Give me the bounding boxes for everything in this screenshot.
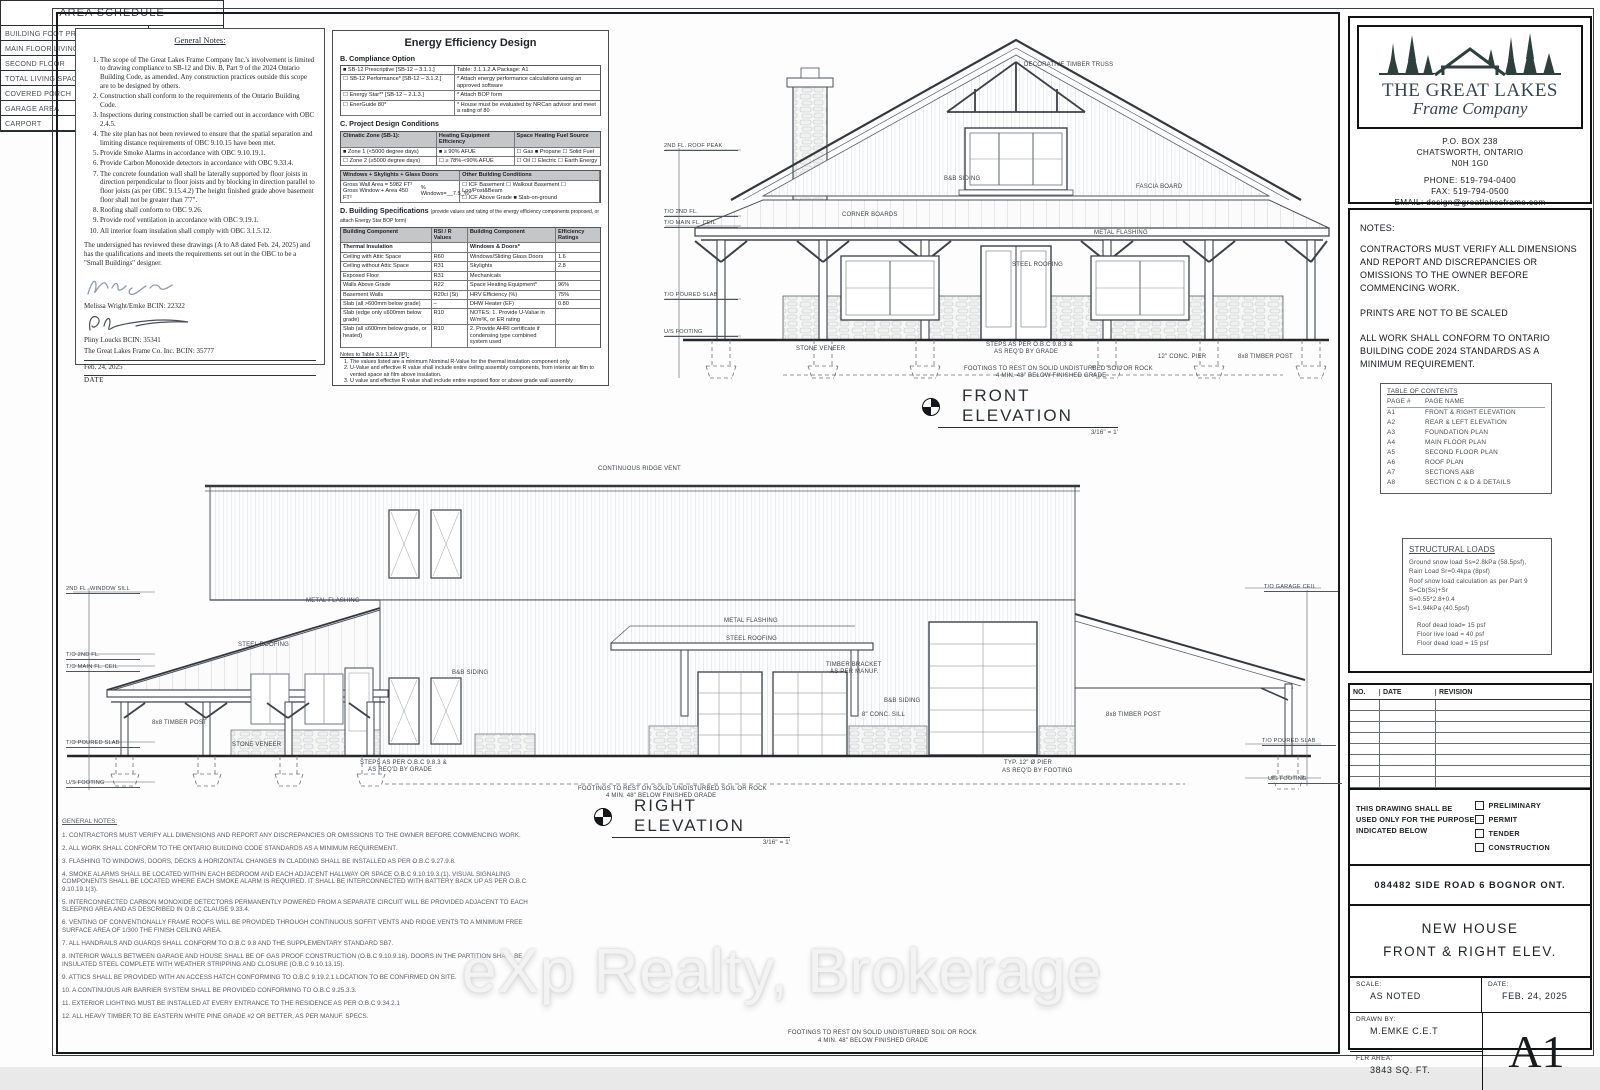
date-label: DATE: [84, 375, 316, 385]
spec-cell: R10: [432, 309, 468, 325]
drawing-annotation: AS REQ'D BY GRADE: [994, 349, 1058, 355]
toc-page: A3: [1387, 428, 1425, 438]
drawing-annotation: 8x8 TIMBER POST: [152, 720, 207, 726]
spec-cell: 96%: [556, 281, 600, 290]
structural-load-line: S=1.94kPa (40.5psf): [1409, 604, 1545, 613]
drawing-annotation: METAL FLASHING: [1094, 230, 1148, 236]
toc-page: A2: [1387, 418, 1425, 428]
energy-footnotes: Notes to Table 3.1.1.2.A (IP): The value…: [340, 352, 601, 386]
drawing-annotation: 8x8 TIMBER POST: [1238, 354, 1293, 360]
toc-name: FOUNDATION PLAN: [1425, 429, 1488, 436]
toc-entry: A3FOUNDATION PLAN: [1387, 428, 1545, 438]
toc-name: REAR & LEFT ELEVATION: [1425, 419, 1507, 426]
toc-entry: A1FRONT & RIGHT ELEVATION: [1387, 408, 1545, 418]
designer1-name: Melissa Wright/Emke BCIN: 22322: [84, 302, 316, 311]
drawing-annotation: T/O POURED SLAB: [664, 292, 738, 300]
toc-name: FRONT & RIGHT ELEVATION: [1425, 409, 1516, 416]
front-elevation-title: FRONT ELEVATION 3/16" = 1': [938, 386, 1118, 436]
structural-load-line: Floor live load = 40 psf: [1417, 630, 1545, 639]
spec-cell: Mechanicals: [468, 272, 556, 281]
drawing-annotation: U/S FOOTING: [1268, 776, 1342, 784]
drawing-annotation: 4 MIN. 48" BELOW FINISHED GRADE: [818, 1038, 928, 1044]
scale-cell: SCALE: AS NOTED: [1350, 978, 1482, 1012]
drawing-annotation: TIMBER BRACKET: [826, 662, 881, 668]
drawing-annotation: 2ND FL. WINDOW SILL: [66, 586, 140, 594]
drawing-annotation: 8x8 TIMBER POST: [1106, 712, 1161, 718]
revision-row: [1350, 733, 1590, 744]
drawing-annotation: CONTINUOUS RIDGE VENT: [598, 466, 681, 472]
general-note-item: Provide Carbon Monoxide detectors in acc…: [100, 159, 316, 168]
general-note-item: All interior foam insulation shall compl…: [100, 227, 316, 236]
compliance-cell: ☐ Energy Star** [SB-12 – 2.1.3.]: [341, 91, 455, 100]
sheet-number: A1: [1483, 1013, 1590, 1090]
drawing-annotation: STONE VENEER: [232, 742, 281, 748]
drawing-annotation: 4 MIN. 48" BELOW FINISHED GRADE: [606, 793, 716, 799]
spec-cell: Slab (all ≤600mm below grade, or heated): [341, 325, 432, 347]
drawing-annotation: METAL FLASHING: [306, 598, 360, 604]
dimension-lines: [665, 148, 741, 378]
compliance-cell: * Attach energy performance calculations…: [455, 75, 600, 91]
bottom-note-item: 6. VENTING OF CONVENTIONALLY FRAME ROOFS…: [62, 919, 536, 934]
spec-cell: 0.80: [556, 300, 600, 309]
compliance-cell: Table: 3.1.1.2.A Package: A1: [455, 66, 600, 75]
trees-and-frame-icon: [1365, 31, 1575, 77]
spec-cell: 2.8: [556, 262, 600, 271]
general-note-item: The site plan has not been reviewed to e…: [100, 130, 316, 148]
spec-cell: DHW Heater (EF): [468, 300, 556, 309]
floor-area-cell: FLR AREA: 3843 SQ. FT.: [1350, 1052, 1482, 1090]
spec-cell: [556, 309, 600, 325]
general-note-item: Provide Smoke Alarms in accordance with …: [100, 149, 316, 158]
footings-below-grade: [111, 756, 1304, 789]
drawing-annotation: FASCIA BOARD: [1136, 184, 1182, 190]
drawing-annotation: FOOTINGS TO REST ON SOLID UNDISTURBED SO…: [964, 366, 1153, 372]
bottom-note-item: 9. ATTICS SHALL BE PROVIDED WITH AN ACCE…: [62, 974, 536, 982]
company-logo-box: THE GREAT LAKES Frame Company P.O. BOX 2…: [1348, 16, 1592, 204]
revision-row: [1350, 722, 1590, 733]
drawing-annotation: AS REQ'D BY FOOTING: [1002, 768, 1073, 774]
drawing-sheet: General Notes: The scope of The Great La…: [0, 0, 1600, 1067]
spec-cell: Slab (all >600mm below grade): [341, 300, 432, 309]
drawing-annotation: T/O POURED SLAB: [66, 740, 140, 748]
bottom-note-item: 11. EXTERIOR LIGHTING MUST BE INSTALLED …: [62, 1000, 536, 1008]
right-elevation-title: RIGHT ELEVATION 3/16" = 1': [612, 796, 790, 846]
bottom-note-item: 1. CONTRACTORS MUST VERIFY ALL DIMENSION…: [62, 832, 536, 840]
spec-cell: Exposed Floor: [341, 272, 432, 281]
bottom-note-item: 7. ALL HANDRAILS AND GUARDS SHALL CONFOR…: [62, 940, 536, 948]
designer-declaration: The undersigned has reviewed these drawi…: [84, 241, 316, 267]
general-notes-box: General Notes: The scope of The Great La…: [75, 28, 325, 365]
spec-cell: [556, 325, 600, 347]
revision-row: [1350, 777, 1590, 788]
drawing-annotation: B&B SIDING: [452, 670, 488, 676]
drawing-annotation: FOOTINGS TO REST ON SOLID UNDISTURBED SO…: [788, 1030, 977, 1036]
purpose-section: THIS DRAWING SHALL BE USED ONLY FOR THE …: [1350, 788, 1590, 864]
drawing-annotation: STEPS AS PER O.B.C 9.8.3 &: [986, 342, 1073, 348]
spec-cell: R10: [432, 325, 468, 347]
bottom-note-item: 10. A CONTINUOUS AIR BARRIER SYSTEM SHAL…: [62, 987, 536, 995]
bottom-note-item: 5. INTERCONNECTED CARBON MONOXIDE DETECT…: [62, 899, 536, 914]
toc-name: ROOF PLAN: [1425, 459, 1464, 466]
checkbox-icon[interactable]: [1475, 815, 1484, 824]
spec-cell: NOTES: 1. Provide U-Value in W/m²K, or E…: [468, 309, 556, 325]
sheet-title: NEW HOUSE FRONT & RIGHT ELEV.: [1350, 904, 1590, 976]
spec-cell: HRV Efficiency (%): [468, 291, 556, 300]
revision-row: [1350, 744, 1590, 755]
drawing-annotation: STEEL ROOFING: [1012, 262, 1063, 268]
purpose-option: CONSTRUCTION: [1475, 840, 1584, 854]
revision-table: NO. DATE REVISION: [1350, 685, 1590, 788]
structural-load-line: Roof snow load calculation as per Part 9: [1409, 577, 1545, 586]
drawing-annotation: 8" CONC. SILL: [862, 712, 905, 718]
date-cell: DATE: FEB. 24, 2025: [1482, 978, 1590, 1012]
company-bcin: The Great Lakes Frame Co. Inc. BCIN: 357…: [84, 347, 316, 356]
titleblock-note: CONTRACTORS MUST VERIFY ALL DIMENSIONS A…: [1360, 243, 1580, 295]
drawing-annotation: TYP. 12" Ø PIER: [1004, 760, 1052, 766]
purpose-option-label: PERMIT: [1489, 815, 1518, 824]
drawing-annotation: STEPS AS PER O.B.C 9.8.3 &: [360, 760, 447, 766]
drawing-annotation: 12" CONC. PIER: [1158, 354, 1206, 360]
bottom-note-item: 3. FLASHING TO WINDOWS, DOORS, DECKS & H…: [62, 858, 536, 866]
toc-name: SECTION C & D & DETAILS: [1425, 479, 1511, 486]
compliance-cell: * Attach BOP form: [455, 91, 600, 100]
drawing-annotation: B&B SIDING: [944, 176, 980, 182]
purpose-option-label: CONSTRUCTION: [1489, 843, 1551, 852]
checkbox-icon[interactable]: [1475, 843, 1484, 852]
spec-cell: Walls Above Grade: [341, 281, 432, 290]
right-elevation-marker-icon: [594, 808, 612, 826]
windows-conditions-table: Windows + Skylights + Glass Doors Other …: [340, 170, 601, 203]
bottom-note-item: 2. ALL WORK SHALL CONFORM TO THE ONTARIO…: [62, 845, 536, 853]
energy-title: Energy Efficiency Design: [340, 37, 601, 50]
porch-roof: [695, 200, 1329, 240]
spec-cell: –: [432, 300, 468, 309]
bottom-note-item: 12. ALL HEAVY TIMBER TO BE EASTERN WHITE…: [62, 1013, 536, 1021]
structural-loads-box: STRUCTURAL LOADS Ground snow load Ss=2.8…: [1402, 538, 1552, 655]
structural-load-line: Roof dead load= 15 psf: [1417, 621, 1545, 630]
drawing-annotation: T/O GARAGE CEIL: [1264, 584, 1338, 592]
spec-cell: R20ci (Si): [432, 291, 468, 300]
spec-cell: R22: [432, 281, 468, 290]
bottom-general-notes: GENERAL NOTES: 1. CONTRACTORS MUST VERIF…: [62, 818, 536, 1026]
spec-cell: Space Heating Equipment*: [468, 281, 556, 290]
energy-footnote: The values listed are a minimum Nominal …: [350, 359, 601, 365]
drawing-annotation: STEEL ROOFING: [238, 642, 289, 648]
toc-title: TABLE OF CONTENTS: [1387, 387, 1545, 397]
titleblock-note: ALL WORK SHALL CONFORM TO ONTARIO BUILDI…: [1360, 332, 1580, 371]
front-elevation-drawing: [643, 28, 1343, 390]
drawing-annotation: METAL FLASHING: [724, 618, 778, 624]
signing-date: Feb. 24, 2025: [84, 360, 316, 372]
drawing-annotation: AS PER MANUF.: [830, 669, 879, 675]
toc-name: SECOND FLOOR PLAN: [1425, 449, 1498, 456]
general-note-item: The concrete foundation wall shall be la…: [100, 170, 316, 205]
energy-section-b: B. Compliance Option: [340, 55, 601, 63]
table-of-contents: TABLE OF CONTENTS PAGE #PAGE NAME A1FRON…: [1380, 383, 1552, 493]
gable-window: [959, 128, 1073, 195]
energy-footnote: U value and effective R value shall incl…: [350, 378, 601, 386]
company-logo: THE GREAT LAKES Frame Company: [1357, 25, 1583, 129]
toc-page: A5: [1387, 448, 1425, 458]
compliance-table: ■ SB-12 Prescriptive [SB-12 – 3.1.1.]Tab…: [340, 65, 601, 117]
checkbox-icon[interactable]: [1475, 829, 1484, 838]
toc-name: MAIN FLOOR PLAN: [1425, 439, 1486, 446]
drawing-annotation: 4 MIN. 48" BELOW FINISHED GRADE: [996, 373, 1106, 379]
design-conditions-table: Climatic Zone (SB-1): Heating Equipment …: [340, 131, 601, 167]
spec-cell: 1.6: [556, 253, 600, 262]
second-storey-wall: [205, 486, 1080, 600]
revision-title-block: NO. DATE REVISION: [1348, 683, 1592, 1050]
general-note-item: Provide roof ventilation in accordance w…: [100, 216, 316, 225]
purpose-option: PERMIT: [1475, 812, 1584, 826]
revision-row: [1350, 700, 1590, 711]
energy-section-c: C. Project Design Conditions: [340, 120, 601, 128]
revision-row: [1350, 766, 1590, 777]
structural-load-line: Floor dead load = 15 psf: [1417, 639, 1545, 648]
spec-cell: Ceiling without Attic Space: [341, 262, 432, 271]
toc-page: A6: [1387, 458, 1425, 468]
drawing-annotation: U/S FOOTING: [664, 329, 738, 337]
revision-row: [1350, 755, 1590, 766]
titleblock-note: PRINTS ARE NOT TO BE SCALED: [1360, 307, 1580, 320]
signature-pliny: [84, 310, 204, 334]
structural-load-line: Ground snow load Ss=2.8kPa (58.5psf),: [1409, 558, 1545, 567]
compliance-cell: * House must be evaluated by NRCan advis…: [455, 101, 600, 117]
drawing-annotation: B&B SIDING: [884, 698, 920, 704]
purpose-option-label: PRELIMINARY: [1489, 801, 1542, 810]
energy-efficiency-box: Energy Efficiency Design B. Compliance O…: [332, 30, 609, 386]
toc-entry: A8SECTION C & D & DETAILS: [1387, 478, 1545, 488]
compliance-cell: ☐ SB-12 Performance* [SB-12 – 3.1.2.]: [341, 75, 455, 91]
titleblock-notes-box: NOTES: CONTRACTORS MUST VERIFY ALL DIMEN…: [1348, 208, 1592, 673]
spec-cell: R60: [432, 253, 468, 262]
general-note-item: Roofing shall conform to OBC 9.26.: [100, 206, 316, 215]
compliance-cell: ☐ EnerGuide 80*: [341, 101, 455, 117]
compliance-cell: ■ SB-12 Prescriptive [SB-12 – 3.1.1.]: [341, 66, 455, 75]
bottom-notes-title: GENERAL NOTES:: [62, 818, 536, 826]
drawing-annotation: STEEL ROOFING: [726, 636, 777, 642]
general-note-item: The scope of The Great Lakes Frame Compa…: [100, 56, 316, 91]
drawing-annotation: FOOTINGS TO REST ON SOLID UNDISTURBED SO…: [578, 786, 767, 792]
drawing-annotation: CORNER BOARDS: [842, 212, 898, 218]
revision-row: [1350, 711, 1590, 722]
toc-page: A8: [1387, 478, 1425, 488]
toc-page: A1: [1387, 408, 1425, 418]
drawing-annotation: T/O 2ND FL.: [664, 209, 738, 217]
structural-load-line: Rain Load Sr=0.4kpa (8psf): [1409, 567, 1545, 576]
toc-entry: A7SECTIONS A&B: [1387, 468, 1545, 478]
spec-cell: R31: [432, 272, 468, 281]
purpose-option-label: TENDER: [1489, 829, 1520, 838]
bottom-note-item: 8. INTERIOR WALLS BETWEEN GARAGE AND HOU…: [62, 953, 536, 968]
checkbox-icon[interactable]: [1475, 801, 1484, 810]
structural-loads-title: STRUCTURAL LOADS: [1409, 544, 1545, 556]
drawing-annotation: T/O 2ND FL.: [66, 652, 140, 660]
spec-cell: Slab (edge only ≤600mm below grade): [341, 309, 432, 325]
signature-melissa: [84, 274, 194, 300]
drawing-annotation: T/O MAIN FL. CEIL: [664, 220, 738, 228]
project-address: 084482 SIDE ROAD 6 BOGNOR ONT.: [1350, 864, 1590, 904]
spec-cell: R31: [432, 262, 468, 271]
drawing-annotation: 2ND FL. ROOF PEAK: [664, 143, 738, 151]
drawn-by-cell: DRAWN BY: M.EMKE C.E.T: [1350, 1013, 1482, 1052]
spec-cell: Skylights: [468, 262, 556, 271]
toc-entry: A4MAIN FLOOR PLAN: [1387, 438, 1545, 448]
right-elevation-scale: 3/16" = 1': [612, 839, 790, 846]
purpose-option: PRELIMINARY: [1475, 798, 1584, 812]
general-notes-title: General Notes:: [84, 35, 316, 46]
carport: [1075, 614, 1305, 756]
general-note-item: Construction shall conform to the requir…: [100, 92, 316, 110]
drawing-annotation: T/O MAIN FL. CEIL: [66, 664, 140, 672]
spec-cell: Basement Walls: [341, 291, 432, 300]
structural-load-line: S=Cb(Ss)+Sr: [1409, 586, 1545, 595]
front-elevation-scale: 3/16" = 1': [938, 429, 1118, 436]
spec-cell: Ceiling with Attic Space: [341, 253, 432, 262]
drawing-annotation: DECORATIVE TIMBER TRUSS: [1024, 62, 1113, 68]
toc-entry: A5SECOND FLOOR PLAN: [1387, 448, 1545, 458]
notes-heading: NOTES:: [1360, 222, 1580, 235]
building-spec-header: Building Component RSI / R Values Buildi…: [340, 227, 601, 253]
spec-cell: Windows/Sliding Glass Doors: [468, 253, 556, 262]
drawing-annotation: AS REQ'D BY GRADE: [368, 767, 432, 773]
spec-cell: 75%: [556, 291, 600, 300]
general-note-item: Inspections during construction shall be…: [100, 111, 316, 129]
toc-entry: A6ROOF PLAN: [1387, 458, 1545, 468]
purpose-text: THIS DRAWING SHALL BE USED ONLY FOR THE …: [1356, 796, 1475, 858]
entry-door: [981, 246, 1051, 340]
purpose-option: TENDER: [1475, 826, 1584, 840]
company-name-line2: Frame Company: [1359, 99, 1581, 119]
company-contact: P.O. BOX 238 CHATSWORTH, ONTARIO N0H 1G0…: [1357, 136, 1583, 208]
general-notes-list: The scope of The Great Lakes Frame Compa…: [84, 56, 316, 236]
drawing-annotation: U/S FOOTING: [66, 780, 140, 788]
drawing-annotation: STONE VENEER: [796, 346, 845, 352]
drawing-annotation: T/O POURED SLAB: [1262, 738, 1336, 746]
designer2-name: Pliny Loucks BCIN: 35341: [84, 336, 316, 345]
building-spec-table: Ceiling with Attic SpaceR60Windows/Slidi…: [340, 253, 601, 348]
spec-cell: [556, 272, 600, 281]
energy-footnote: U-Value and effective R value shall incl…: [350, 365, 601, 377]
toc-page: A7: [1387, 468, 1425, 478]
spec-cell: 2. Provide AHRI certificate if condensin…: [468, 325, 556, 347]
energy-section-d: D. Building Specifications: [340, 206, 429, 215]
structural-load-line: S=0.55*2.8+0.4: [1409, 595, 1545, 604]
toc-entry: A2REAR & LEFT ELEVATION: [1387, 418, 1545, 428]
toc-name: SECTIONS A&B: [1425, 469, 1474, 476]
toc-page: A4: [1387, 438, 1425, 448]
bottom-note-item: 4. SMOKE ALARMS SHALL BE LOCATED WITHIN …: [62, 871, 536, 894]
